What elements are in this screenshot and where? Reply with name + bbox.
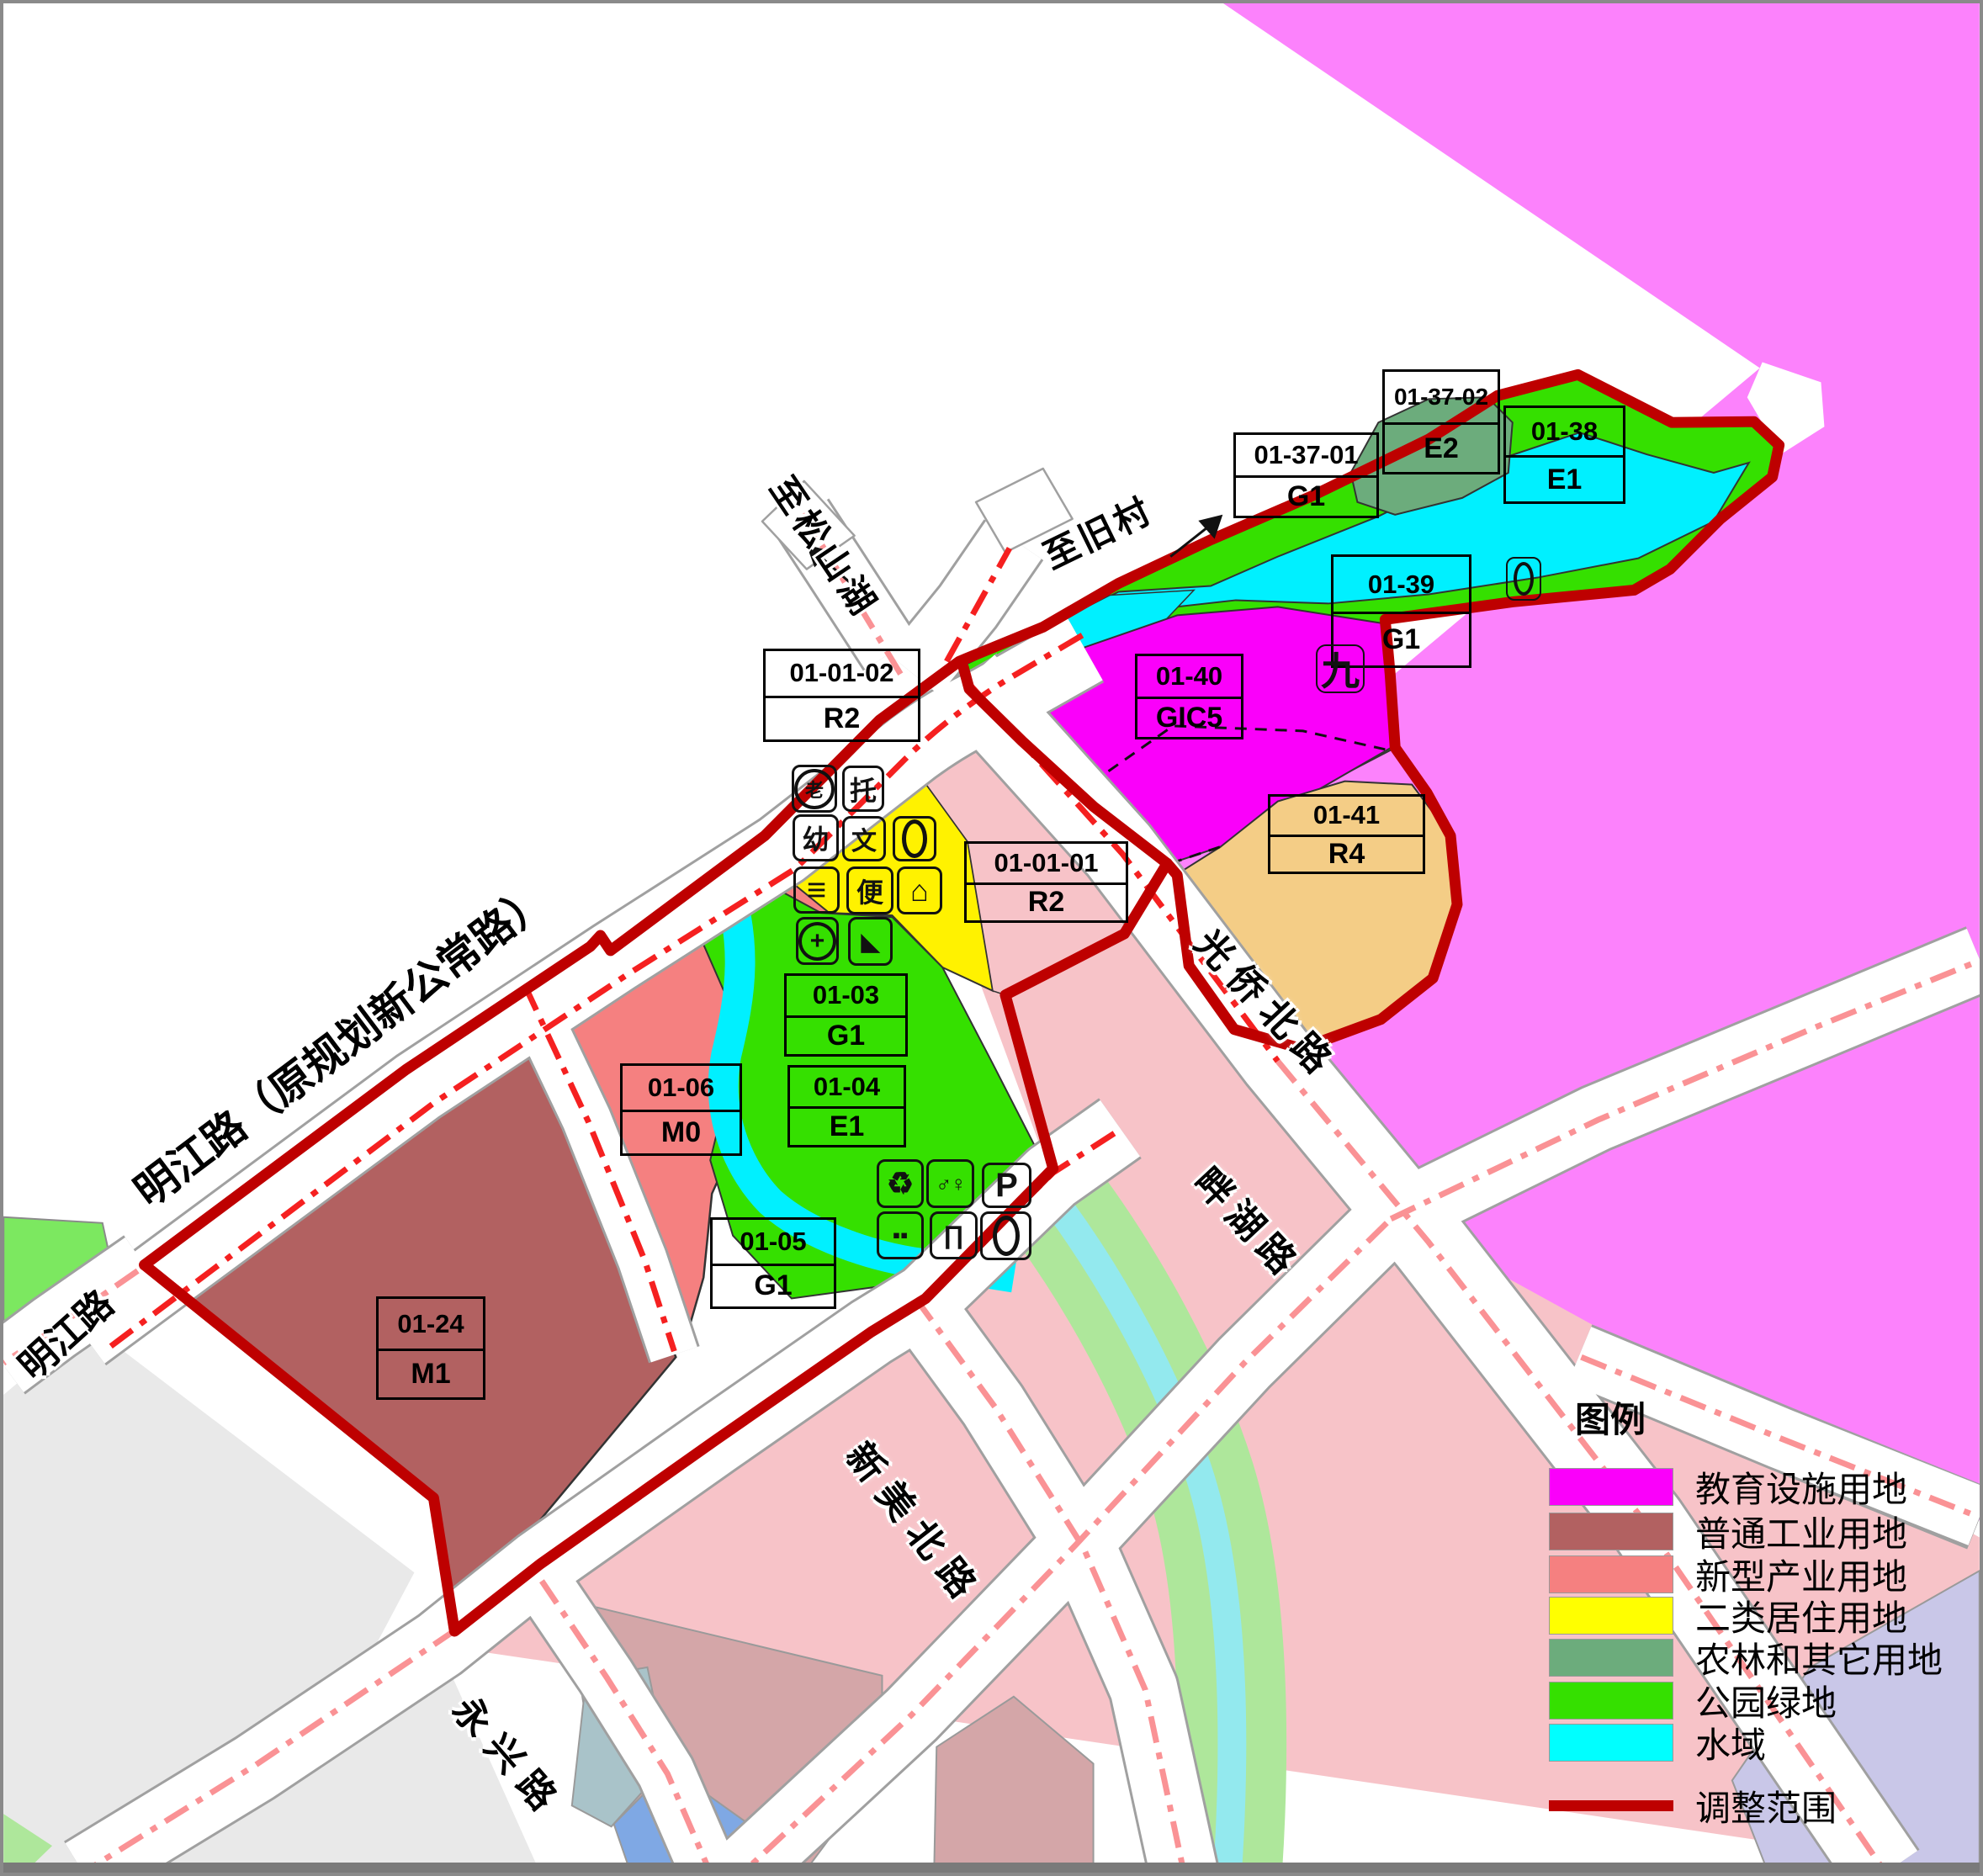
- parcel-code: 01-39: [1333, 557, 1469, 612]
- zoning-map: 01-01-02 R2 01-01-01 R2 01-03 G1 01-04 E…: [0, 0, 1983, 1876]
- parcel-code: 01-37-01: [1236, 435, 1376, 475]
- waste-bins-icon: ▪▪: [877, 1211, 924, 1259]
- legend-label: 教育设施用地: [1695, 1461, 1907, 1513]
- childcare-glyph: 托: [850, 770, 877, 808]
- legend: 图例 教育设施用地 普通工业用地 新型产业用地 二类居住用地 农林和其它用地 公…: [1549, 1391, 1983, 1812]
- legend-label: 水域: [1695, 1717, 1766, 1768]
- parcel-use: E1: [790, 1106, 904, 1145]
- oval-facility-icon-north: [1506, 557, 1541, 601]
- legend-item-education: 教育设施用地: [1549, 1461, 1907, 1513]
- map-bottom-border: [3, 1863, 1980, 1873]
- legend-swatch: [1549, 1468, 1673, 1506]
- market-glyph: ≡: [807, 872, 826, 909]
- legend-swatch: [1549, 1724, 1673, 1762]
- waste-bins-glyph: ▪▪: [893, 1222, 908, 1248]
- legend-swatch: [1549, 1597, 1673, 1635]
- parcel-use: M1: [379, 1349, 483, 1397]
- parcel-code: 01-37-02: [1385, 372, 1498, 422]
- public-toilet-oval-icon: [893, 816, 936, 861]
- legend-swatch: [1549, 1639, 1673, 1677]
- parcel-label-01-24: 01-24 M1: [376, 1296, 485, 1400]
- restroom-glyph: ♂♀: [936, 1171, 965, 1197]
- parcel-label-01-06: 01-06 M0: [620, 1063, 742, 1156]
- elderly-care-glyph: 老: [794, 769, 835, 809]
- parcel-use: G1: [713, 1264, 834, 1306]
- seating-glyph: ∏: [943, 1222, 964, 1250]
- parcel-label-01-05: 01-05 G1: [710, 1217, 836, 1309]
- oval-glyph: [993, 1216, 1020, 1256]
- restroom-icon: ♂♀: [926, 1159, 974, 1208]
- jiu-marker: 九: [1316, 644, 1365, 693]
- convenience-glyph: 便: [856, 872, 883, 910]
- parcel-use: GIC5: [1137, 697, 1241, 737]
- parcel-use: G1: [1236, 475, 1376, 516]
- parcel-use: G1: [787, 1015, 905, 1054]
- parcel-label-01-41: 01-41 R4: [1268, 794, 1425, 874]
- parcel-code: 01-03: [787, 976, 905, 1015]
- parcel-label-01-04: 01-04 E1: [787, 1065, 906, 1147]
- parcel-label-01-37-01: 01-37-01 G1: [1233, 432, 1379, 518]
- parcel-code: 01-01-01: [967, 844, 1126, 882]
- jiu-marker-text: 九: [1321, 641, 1360, 697]
- legend-item-water: 水域: [1549, 1717, 1766, 1768]
- kindergarten-glyph: 幼: [802, 819, 829, 857]
- legend-boundary-line: [1549, 1800, 1673, 1811]
- culture-glyph: 文: [851, 820, 877, 857]
- culture-icon: 文: [842, 816, 886, 861]
- parking-icon: P: [982, 1163, 1031, 1208]
- parcel-label-01-38: 01-38 E1: [1503, 405, 1625, 504]
- parcel-code: 01-40: [1137, 656, 1241, 697]
- parking-glyph: P: [995, 1167, 1018, 1205]
- parcel-use: E2: [1385, 422, 1498, 472]
- oval-glyph: [1514, 562, 1534, 596]
- playground-glyph: ◣: [862, 928, 880, 956]
- parcel-label-01-01-01: 01-01-01 R2: [964, 841, 1128, 923]
- parcel-code: 01-06: [623, 1066, 740, 1110]
- parcel-label-01-03: 01-03 G1: [784, 973, 908, 1057]
- clinic-icon: +: [796, 917, 839, 965]
- parcel-label-01-40: 01-40 GIC5: [1135, 654, 1243, 739]
- legend-title: 图例: [1575, 1391, 1646, 1443]
- parcel-code: 01-38: [1506, 408, 1623, 455]
- playground-icon: ◣: [848, 917, 893, 966]
- parcel-label-01-37-02: 01-37-02 E2: [1382, 369, 1500, 474]
- parcel-use: R2: [766, 696, 918, 739]
- parcel-code: 01-24: [379, 1299, 483, 1349]
- parcel-use: R2: [967, 882, 1126, 920]
- elderly-care-icon: 老: [792, 765, 837, 813]
- legend-label: 调整范围: [1695, 1780, 1837, 1831]
- parcel-use: R4: [1270, 835, 1423, 872]
- recycling-glyph: ♻: [887, 1166, 914, 1201]
- seating-icon: ∏: [930, 1211, 978, 1259]
- parcel-use: E1: [1506, 455, 1623, 501]
- market-icon: ≡: [793, 866, 840, 914]
- legend-swatch: [1549, 1555, 1673, 1593]
- recycling-icon: ♻: [877, 1159, 924, 1208]
- community-house-glyph: ⌂: [910, 873, 929, 909]
- oval-glyph: [902, 819, 927, 858]
- parcel-code: 01-01-02: [766, 651, 918, 696]
- childcare-icon: 托: [842, 766, 884, 812]
- oval-facility-icon: [980, 1211, 1031, 1260]
- legend-swatch: [1549, 1513, 1673, 1550]
- clinic-glyph: +: [798, 922, 836, 961]
- legend-item-boundary: 调整范围: [1549, 1780, 1837, 1831]
- legend-swatch: [1549, 1682, 1673, 1720]
- community-house-icon: ⌂: [897, 866, 942, 914]
- parcel-code: 01-04: [790, 1068, 904, 1106]
- convenience-icon: 便: [846, 866, 893, 914]
- parcel-use: M0: [623, 1110, 740, 1153]
- parcel-code: 01-41: [1270, 797, 1423, 835]
- parcel-code: 01-05: [713, 1220, 834, 1264]
- kindergarten-icon: 幼: [793, 814, 839, 861]
- parcel-label-01-01-02: 01-01-02 R2: [763, 649, 920, 742]
